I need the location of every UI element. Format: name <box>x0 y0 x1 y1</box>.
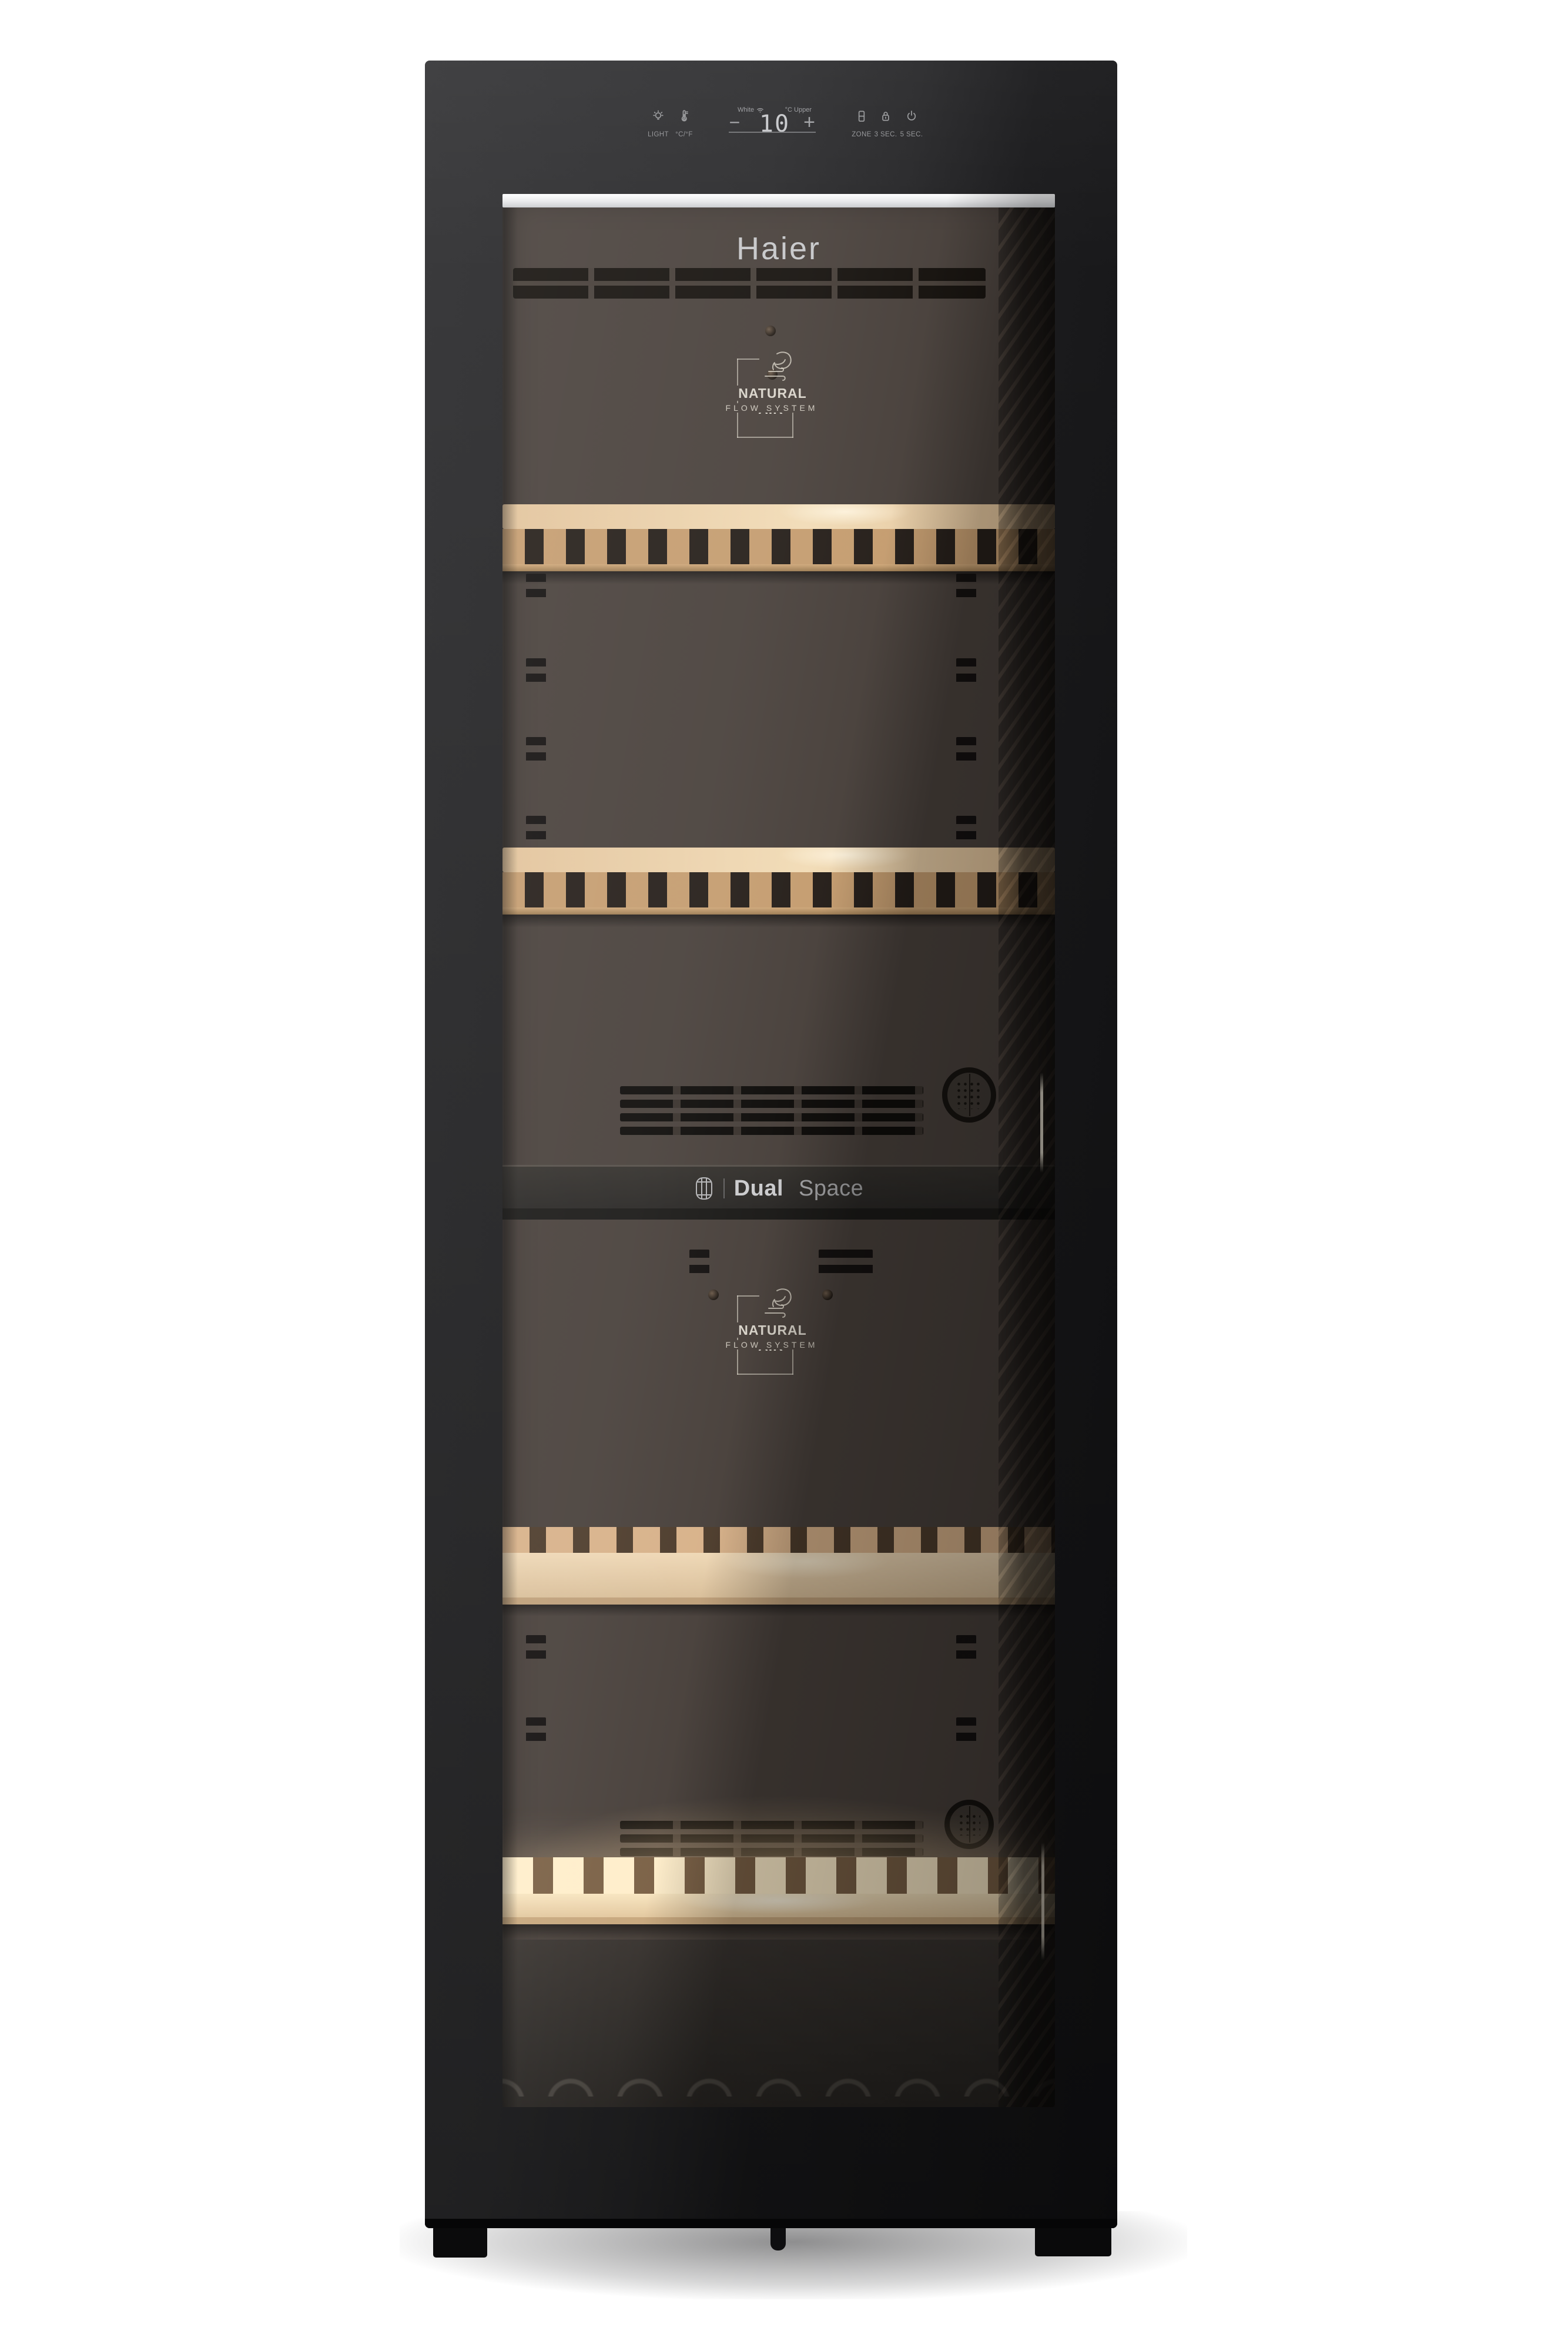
shelf-slats <box>502 1857 1055 1894</box>
vent-slot-pair <box>956 1717 976 1743</box>
power-button-label: 5 SEC. <box>900 131 923 138</box>
shelf-lip <box>502 1598 1055 1605</box>
shelf-rail <box>502 1553 1055 1598</box>
shelf-shadow <box>502 915 1055 927</box>
divider-separator <box>723 1178 725 1198</box>
power-button[interactable]: 5 SEC. <box>896 109 927 138</box>
shelf-lip <box>502 907 1055 915</box>
top-vent-grille <box>513 268 986 299</box>
product-photo: LIGHT °C/°F − White °C Upper <box>0 0 1568 2351</box>
shelf-lip <box>502 564 1055 571</box>
shelf-rail <box>502 504 1055 529</box>
shelf-backlight-glow <box>502 1775 1055 1857</box>
power-icon <box>904 109 919 124</box>
leaf-airflow-icon <box>757 1285 800 1322</box>
vent-slot-pair <box>956 737 976 763</box>
glass-door[interactable]: Haier NATURAL AIR FLOW <box>502 194 1055 2107</box>
light-bulb-icon <box>651 109 666 124</box>
shelf-lip <box>502 1917 1055 1924</box>
haier-logo: Haier <box>502 230 1055 267</box>
shelf-slats <box>502 529 1055 564</box>
display-mode-label: White <box>738 106 754 113</box>
vent-slot-pair <box>689 1250 709 1275</box>
light-button-label: LIGHT <box>648 131 669 138</box>
vent-slot-pair <box>526 574 546 600</box>
shelf-slats <box>502 872 1055 907</box>
wooden-shelf-4-backlit <box>502 1857 1055 1940</box>
right-foot <box>1035 2226 1111 2256</box>
lock-icon <box>878 109 893 124</box>
divider-branding: Dual Space <box>502 1173 1055 1204</box>
natural-air-badge-lower: NATURAL AIR FLOW SYSTEM <box>722 1288 822 1382</box>
zone-button-label: ZONE <box>852 131 872 138</box>
dual-space-divider: Dual Space <box>502 1165 1055 1220</box>
right-rack-column-shadow <box>999 207 1055 2107</box>
vent-slot-pair <box>526 737 546 763</box>
lock-button-label: 3 SEC. <box>875 131 897 138</box>
left-foot <box>433 2226 487 2258</box>
leaf-airflow-icon <box>757 348 800 386</box>
vent-slot-pair <box>956 574 976 600</box>
glass-edge-glint <box>1040 1073 1043 1173</box>
bottom-compartment <box>502 1940 1055 2107</box>
natural-air-badge-upper: NATURAL AIR FLOW SYSTEM <box>722 351 822 446</box>
shelf-rail <box>502 1894 1055 1917</box>
vent-slot-pair <box>956 816 976 842</box>
temperature-sensor-upper <box>942 1067 996 1123</box>
bottle-rest-scallops <box>502 2060 1055 2097</box>
vent-slot-pair <box>526 1635 546 1661</box>
badge-line2: FLOW SYSTEM <box>722 403 822 413</box>
shelf-rail <box>502 848 1055 872</box>
vent-slot-pair <box>526 658 546 684</box>
vent-slot-pair <box>526 816 546 842</box>
zone-compartments-icon <box>854 109 869 124</box>
led-light-bar <box>502 194 1055 207</box>
temp-plus-button[interactable]: + <box>798 112 821 132</box>
shelf-shadow <box>502 1605 1055 1616</box>
panel-screw <box>765 326 776 336</box>
vent-slot-pair <box>819 1250 873 1275</box>
dual-space-label-light: Space <box>799 1176 863 1201</box>
panel-screw <box>822 1290 833 1300</box>
wooden-shelf-3 <box>502 1527 1055 1616</box>
divider-shadow <box>502 1208 1055 1220</box>
vent-slot-pair <box>956 658 976 684</box>
temp-unit-button-label: °C/°F <box>675 131 693 138</box>
left-rack-column-shadow <box>502 207 518 2107</box>
shelf-slat-tops <box>502 1527 1055 1553</box>
wooden-shelf-1 <box>502 504 1055 584</box>
dual-space-label-bold: Dual <box>734 1176 783 1201</box>
wooden-shelf-2 <box>502 848 1055 927</box>
vent-slot-pair <box>526 1717 546 1743</box>
temp-unit-button[interactable]: °C/°F <box>669 109 699 138</box>
glass-edge-glint <box>1041 1843 1044 1960</box>
thermometer-icon <box>676 109 692 124</box>
panel-screw <box>708 1290 719 1300</box>
wine-barrel-icon <box>694 1176 714 1201</box>
top-vent-grille-divider <box>513 281 986 286</box>
shelf-shadow <box>502 1924 1055 1940</box>
center-drain-tab <box>770 2227 786 2250</box>
cooling-vent-grille-upper <box>620 1086 923 1140</box>
display-underline <box>729 132 816 133</box>
vent-slot-pair <box>956 1635 976 1661</box>
wine-cabinet: LIGHT °C/°F − White °C Upper <box>425 61 1117 2228</box>
badge-line2: FLOW SYSTEM <box>722 1340 822 1349</box>
